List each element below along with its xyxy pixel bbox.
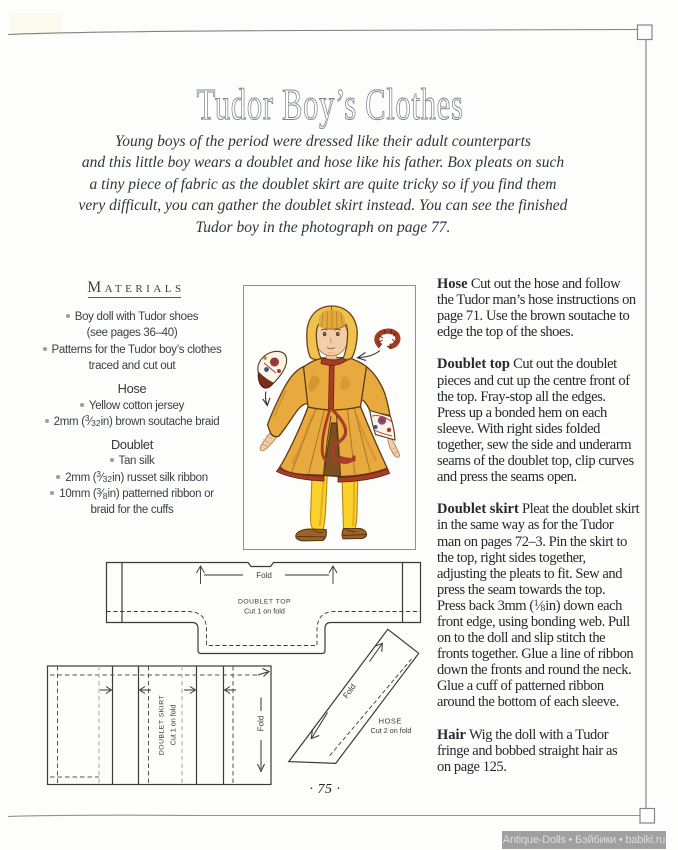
svg-text:DOUBLET TOP: DOUBLET TOP <box>238 599 291 606</box>
svg-text:Fold: Fold <box>341 682 358 700</box>
svg-text:HOSE: HOSE <box>379 717 402 726</box>
svg-text:Fold: Fold <box>256 571 272 580</box>
svg-text:Cut 1 on fold: Cut 1 on fold <box>244 607 285 616</box>
svg-text:Cut 2 on fold: Cut 2 on fold <box>371 726 412 735</box>
svg-text:Cut 1 on fold: Cut 1 on fold <box>169 705 178 746</box>
svg-text:DOUBLET SKIRT: DOUBLET SKIRT <box>159 695 166 755</box>
svg-text:Fold: Fold <box>257 716 266 732</box>
